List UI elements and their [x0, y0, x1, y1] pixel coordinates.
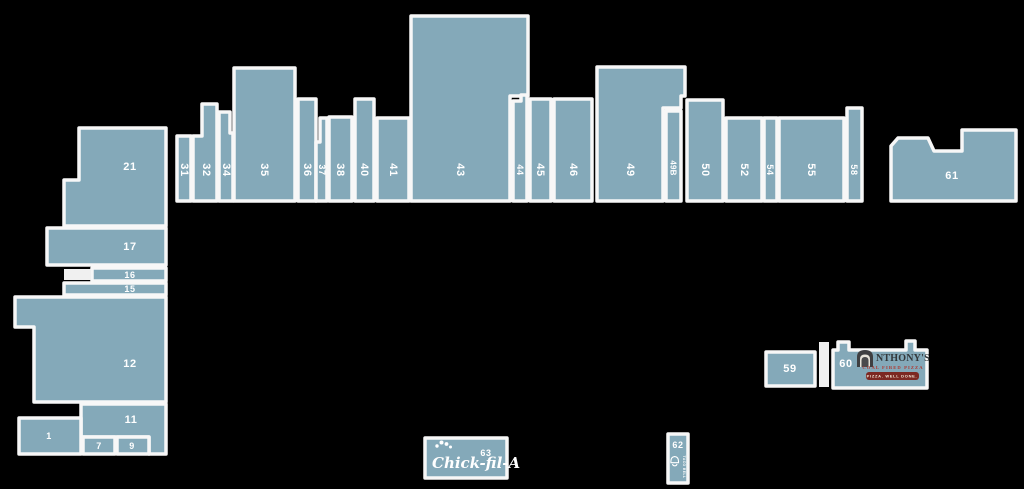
unit-52-shape[interactable]: [726, 118, 762, 201]
unit-32[interactable]: 32: [193, 104, 217, 201]
unit-46[interactable]: 46: [554, 99, 592, 201]
unit-12-shape[interactable]: [15, 297, 166, 402]
unit-45[interactable]: 45: [530, 99, 551, 201]
unit-9[interactable]: 9: [117, 437, 149, 454]
unit-16-side-block: [64, 269, 91, 280]
unit-36-label: 36: [301, 163, 313, 176]
unit-50-shape[interactable]: [687, 100, 723, 201]
unit-43-label: 43: [454, 163, 466, 176]
mall-site-plan-map: 2117161512111793132343536373840414344454…: [0, 0, 1024, 489]
unit-35[interactable]: 35: [234, 68, 295, 201]
unit-38-shape[interactable]: [329, 117, 352, 201]
anthonys-logo-text: NTHONY'S: [876, 353, 930, 364]
unit-21-label: 21: [123, 161, 136, 173]
unit-17-shape[interactable]: [47, 228, 166, 265]
unit-44-label: 44: [515, 164, 525, 175]
anthonys-logo-text: PIZZA. WELL DONE.: [867, 374, 918, 379]
unit-59-60-connector: [819, 342, 829, 387]
unit-44[interactable]: 44: [513, 95, 527, 201]
unit-15-shape[interactable]: [64, 283, 166, 295]
unit-40[interactable]: 40: [355, 99, 374, 201]
unit-17[interactable]: 17: [47, 228, 166, 265]
unit-38-label: 38: [334, 163, 346, 176]
unit-37-label: 37: [317, 164, 327, 175]
unit-49B[interactable]: 49B: [666, 111, 681, 201]
unit-59[interactable]: 59: [766, 352, 815, 386]
unit-52-label: 52: [738, 163, 750, 176]
unit-59-label: 59: [783, 363, 796, 375]
unit-62-label: 62: [672, 440, 683, 450]
unit-21-shape[interactable]: [64, 128, 166, 226]
unit-58-shape[interactable]: [847, 108, 862, 201]
unit-60-label: 60: [839, 358, 852, 370]
unit-17-label: 17: [123, 241, 136, 253]
unit-61[interactable]: 61: [891, 130, 1016, 201]
unit-36-shape[interactable]: [298, 99, 316, 201]
unit-1[interactable]: 1: [19, 418, 81, 454]
unit-46-label: 46: [567, 163, 579, 176]
unit-35-label: 35: [258, 163, 270, 176]
unit-40-label: 40: [358, 163, 370, 176]
unit-43[interactable]: 43: [411, 16, 528, 201]
unit-54-label: 54: [765, 164, 775, 175]
unit-45-label: 45: [534, 163, 546, 176]
site-plan-stage: 2117161512111793132343536373840414344454…: [0, 0, 1024, 489]
unit-31-label: 31: [178, 163, 190, 176]
unit-52[interactable]: 52: [726, 118, 762, 201]
unit-43-shape[interactable]: [411, 16, 528, 201]
unit-7[interactable]: 7: [83, 437, 115, 454]
unit-58[interactable]: 58: [847, 108, 862, 201]
unit-12[interactable]: 12: [15, 297, 166, 402]
unit-54-shape[interactable]: [764, 118, 777, 201]
unit-55-shape[interactable]: [779, 118, 844, 201]
unit-38[interactable]: 38: [329, 117, 352, 201]
unit-49B-shape[interactable]: [666, 111, 681, 201]
unit-58-label: 58: [849, 164, 859, 175]
unit-34-label: 34: [220, 163, 232, 177]
unit-12-label: 12: [123, 358, 136, 370]
unit-35-shape[interactable]: [234, 68, 295, 201]
unit-9-label: 9: [129, 441, 135, 451]
unit-41-label: 41: [387, 163, 399, 176]
unit-32-shape[interactable]: [193, 104, 217, 201]
unit-61-label: 61: [945, 170, 958, 182]
unit-46-shape[interactable]: [554, 99, 592, 201]
unit-50[interactable]: 50: [687, 100, 723, 201]
unit-44-shape[interactable]: [513, 95, 527, 201]
unit-7-label: 7: [96, 441, 102, 451]
unit-16-label: 16: [124, 270, 135, 280]
unit-55-label: 55: [805, 163, 817, 176]
unit-45-shape[interactable]: [530, 99, 551, 201]
unit-50-label: 50: [699, 163, 711, 176]
unit-1-label: 1: [46, 431, 52, 441]
unit-40-shape[interactable]: [355, 99, 374, 201]
unit-31[interactable]: 31: [177, 136, 191, 201]
unit-49B-label: 49B: [669, 160, 678, 175]
unit-54[interactable]: 54: [764, 118, 777, 201]
unit-21[interactable]: 21: [64, 128, 166, 226]
unit-15[interactable]: 15: [64, 283, 166, 295]
unit-11-label: 11: [125, 414, 138, 426]
unit-55[interactable]: 55: [779, 118, 844, 201]
chickfila-logo-text: Chick-fil-A: [432, 454, 520, 472]
unit-36[interactable]: 36: [298, 99, 316, 201]
anthonys-logo-text: COAL FIRED PIZZA: [862, 365, 923, 370]
unit-34-shape[interactable]: [219, 112, 233, 201]
unit-41-shape[interactable]: [377, 118, 409, 201]
unit-16[interactable]: 16: [92, 268, 166, 281]
unit-32-label: 32: [200, 163, 212, 176]
unit-41[interactable]: 41: [377, 118, 409, 201]
unit-15-label: 15: [124, 284, 135, 294]
units-layer: 2117161512111793132343536373840414344454…: [15, 16, 1016, 483]
unit-61-shape[interactable]: [891, 130, 1016, 201]
unit-49-label: 49: [624, 163, 636, 176]
unit-34[interactable]: 34: [219, 112, 233, 201]
decor-layer: [64, 269, 829, 387]
tacobell-logo-text: TACO BELL: [682, 456, 686, 479]
